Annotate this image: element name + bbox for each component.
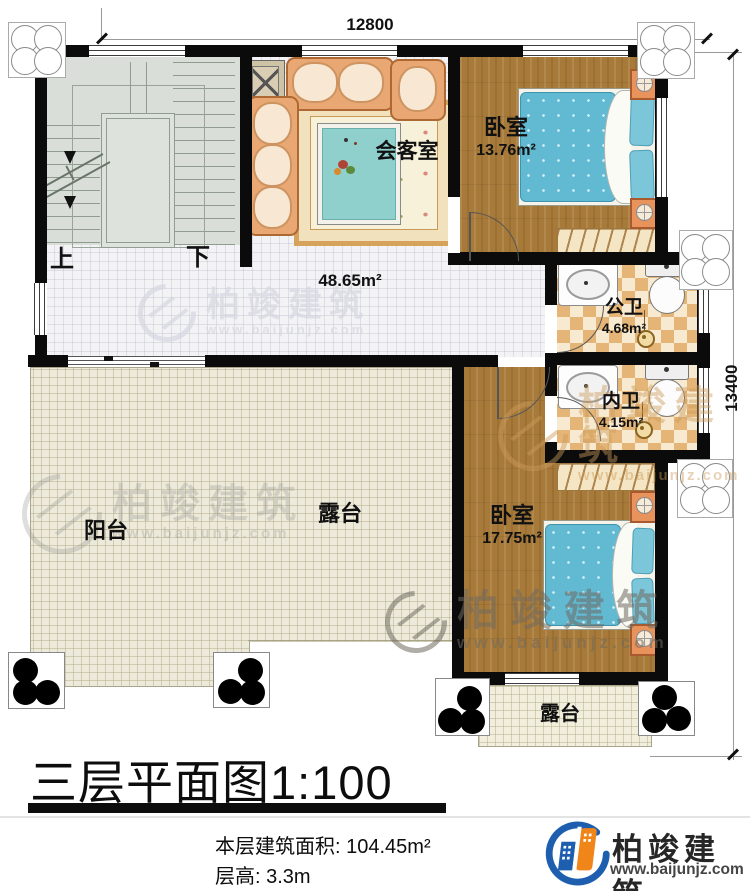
room-label-bedroom-bottom: 卧室 17.75m² (462, 503, 562, 549)
wall (28, 355, 68, 367)
doorway (545, 305, 557, 353)
terrace-main-floor (30, 367, 457, 642)
pillow (631, 578, 655, 625)
shrub-icon (677, 459, 733, 518)
room-label-bedroom-top: 卧室 13.76m² (456, 115, 556, 161)
wardrobe (557, 463, 655, 491)
pillow (629, 96, 655, 147)
stair-flight-line (146, 62, 147, 113)
brand-logo-icon (540, 820, 610, 888)
door-leaf (497, 367, 499, 419)
sofa-cushion (253, 186, 292, 229)
table-decor (344, 138, 348, 142)
stair-arrow (64, 151, 76, 164)
sliding-door (68, 356, 205, 367)
planter-icon (8, 652, 65, 709)
wall (547, 355, 557, 367)
sofa-cushion (253, 102, 292, 145)
stair-arrow (64, 196, 76, 209)
planter-icon (638, 681, 695, 736)
room-label-public-bath: 公卫 4.68m² (580, 297, 668, 337)
dimension-width-label: 12800 (330, 15, 410, 35)
door-leaf (469, 212, 471, 261)
sink-basin (566, 269, 610, 300)
sliding-door-handle (104, 356, 113, 361)
shrub-icon (679, 230, 733, 290)
window (523, 45, 628, 57)
wall (655, 450, 668, 685)
wall (545, 352, 710, 365)
sofa-cushion (398, 66, 437, 112)
sink-faucet (584, 384, 588, 388)
room-label-terrace-small: 露台 (540, 702, 580, 726)
nightstand-lamp (636, 204, 653, 221)
window (302, 45, 397, 57)
divider (0, 816, 750, 818)
window (89, 45, 185, 57)
sofa-cushion (253, 144, 292, 187)
doorway (545, 396, 557, 442)
room-label-balcony: 阳台 (84, 518, 128, 544)
table-flower (346, 166, 355, 174)
room-label-hall-area: 48.65m² (300, 271, 400, 291)
brand-name: 柏竣建筑 (612, 824, 750, 891)
dimension-height-label: 13400 (722, 338, 742, 438)
nightstand-lamp (636, 630, 653, 647)
window (34, 283, 47, 335)
stair-flight-line (130, 62, 131, 113)
dimension-line-top (101, 39, 710, 40)
stairs-up-label: 上 (50, 246, 74, 275)
stair-landing (101, 113, 175, 248)
sofa-cushion (338, 62, 384, 103)
floor-height-text: 层高: 3.3m (215, 860, 311, 889)
planter-icon (435, 678, 490, 736)
room-label-ensuite-bath: 内卫 4.15m² (577, 391, 665, 431)
sink-faucet (584, 281, 588, 285)
table-decor (354, 142, 357, 145)
floor-plan-page: 12800 13400 (0, 0, 750, 891)
window (505, 673, 579, 685)
room-label-terrace-main: 露台 (318, 501, 362, 527)
sofa-cushion (292, 62, 338, 103)
wall (462, 355, 498, 367)
shrub-icon (637, 22, 695, 79)
terrace-edge (248, 640, 455, 641)
pillow (629, 150, 655, 201)
nightstand-lamp (636, 497, 653, 514)
stairs-down-label: 下 (186, 244, 210, 273)
toilet-button (664, 367, 669, 372)
planter-icon (213, 652, 270, 708)
room-label-reception: 会客室 (362, 139, 452, 164)
floor-area-text: 本层建筑面积: 104.45m² (215, 830, 431, 859)
table-flower (334, 168, 341, 175)
wall (240, 45, 252, 267)
pillow (631, 528, 655, 575)
shrub-icon (8, 22, 66, 78)
wall (205, 355, 462, 367)
corridor-floor (448, 265, 545, 357)
window (656, 98, 668, 197)
window (698, 368, 710, 433)
doorway (448, 197, 460, 253)
sliding-door-handle (150, 362, 159, 367)
title-underline (28, 803, 446, 813)
brand-url: www.baijunjz.com (610, 861, 744, 879)
